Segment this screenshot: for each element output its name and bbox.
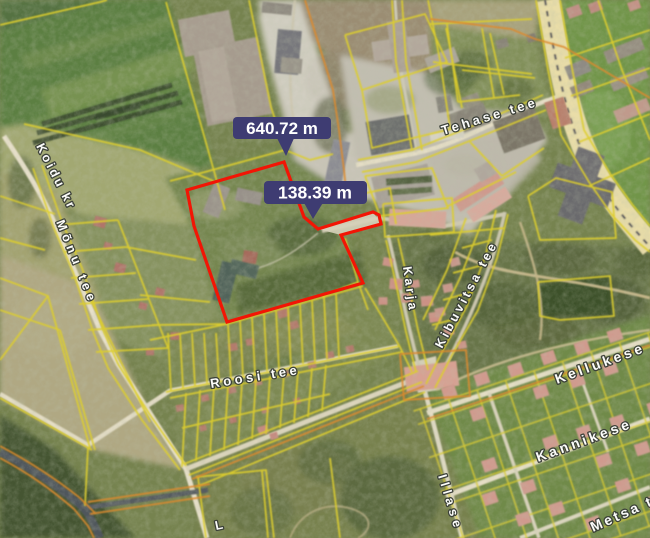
svg-text:640.72 m: 640.72 m bbox=[246, 119, 318, 138]
svg-text:138.39 m: 138.39 m bbox=[278, 183, 352, 203]
